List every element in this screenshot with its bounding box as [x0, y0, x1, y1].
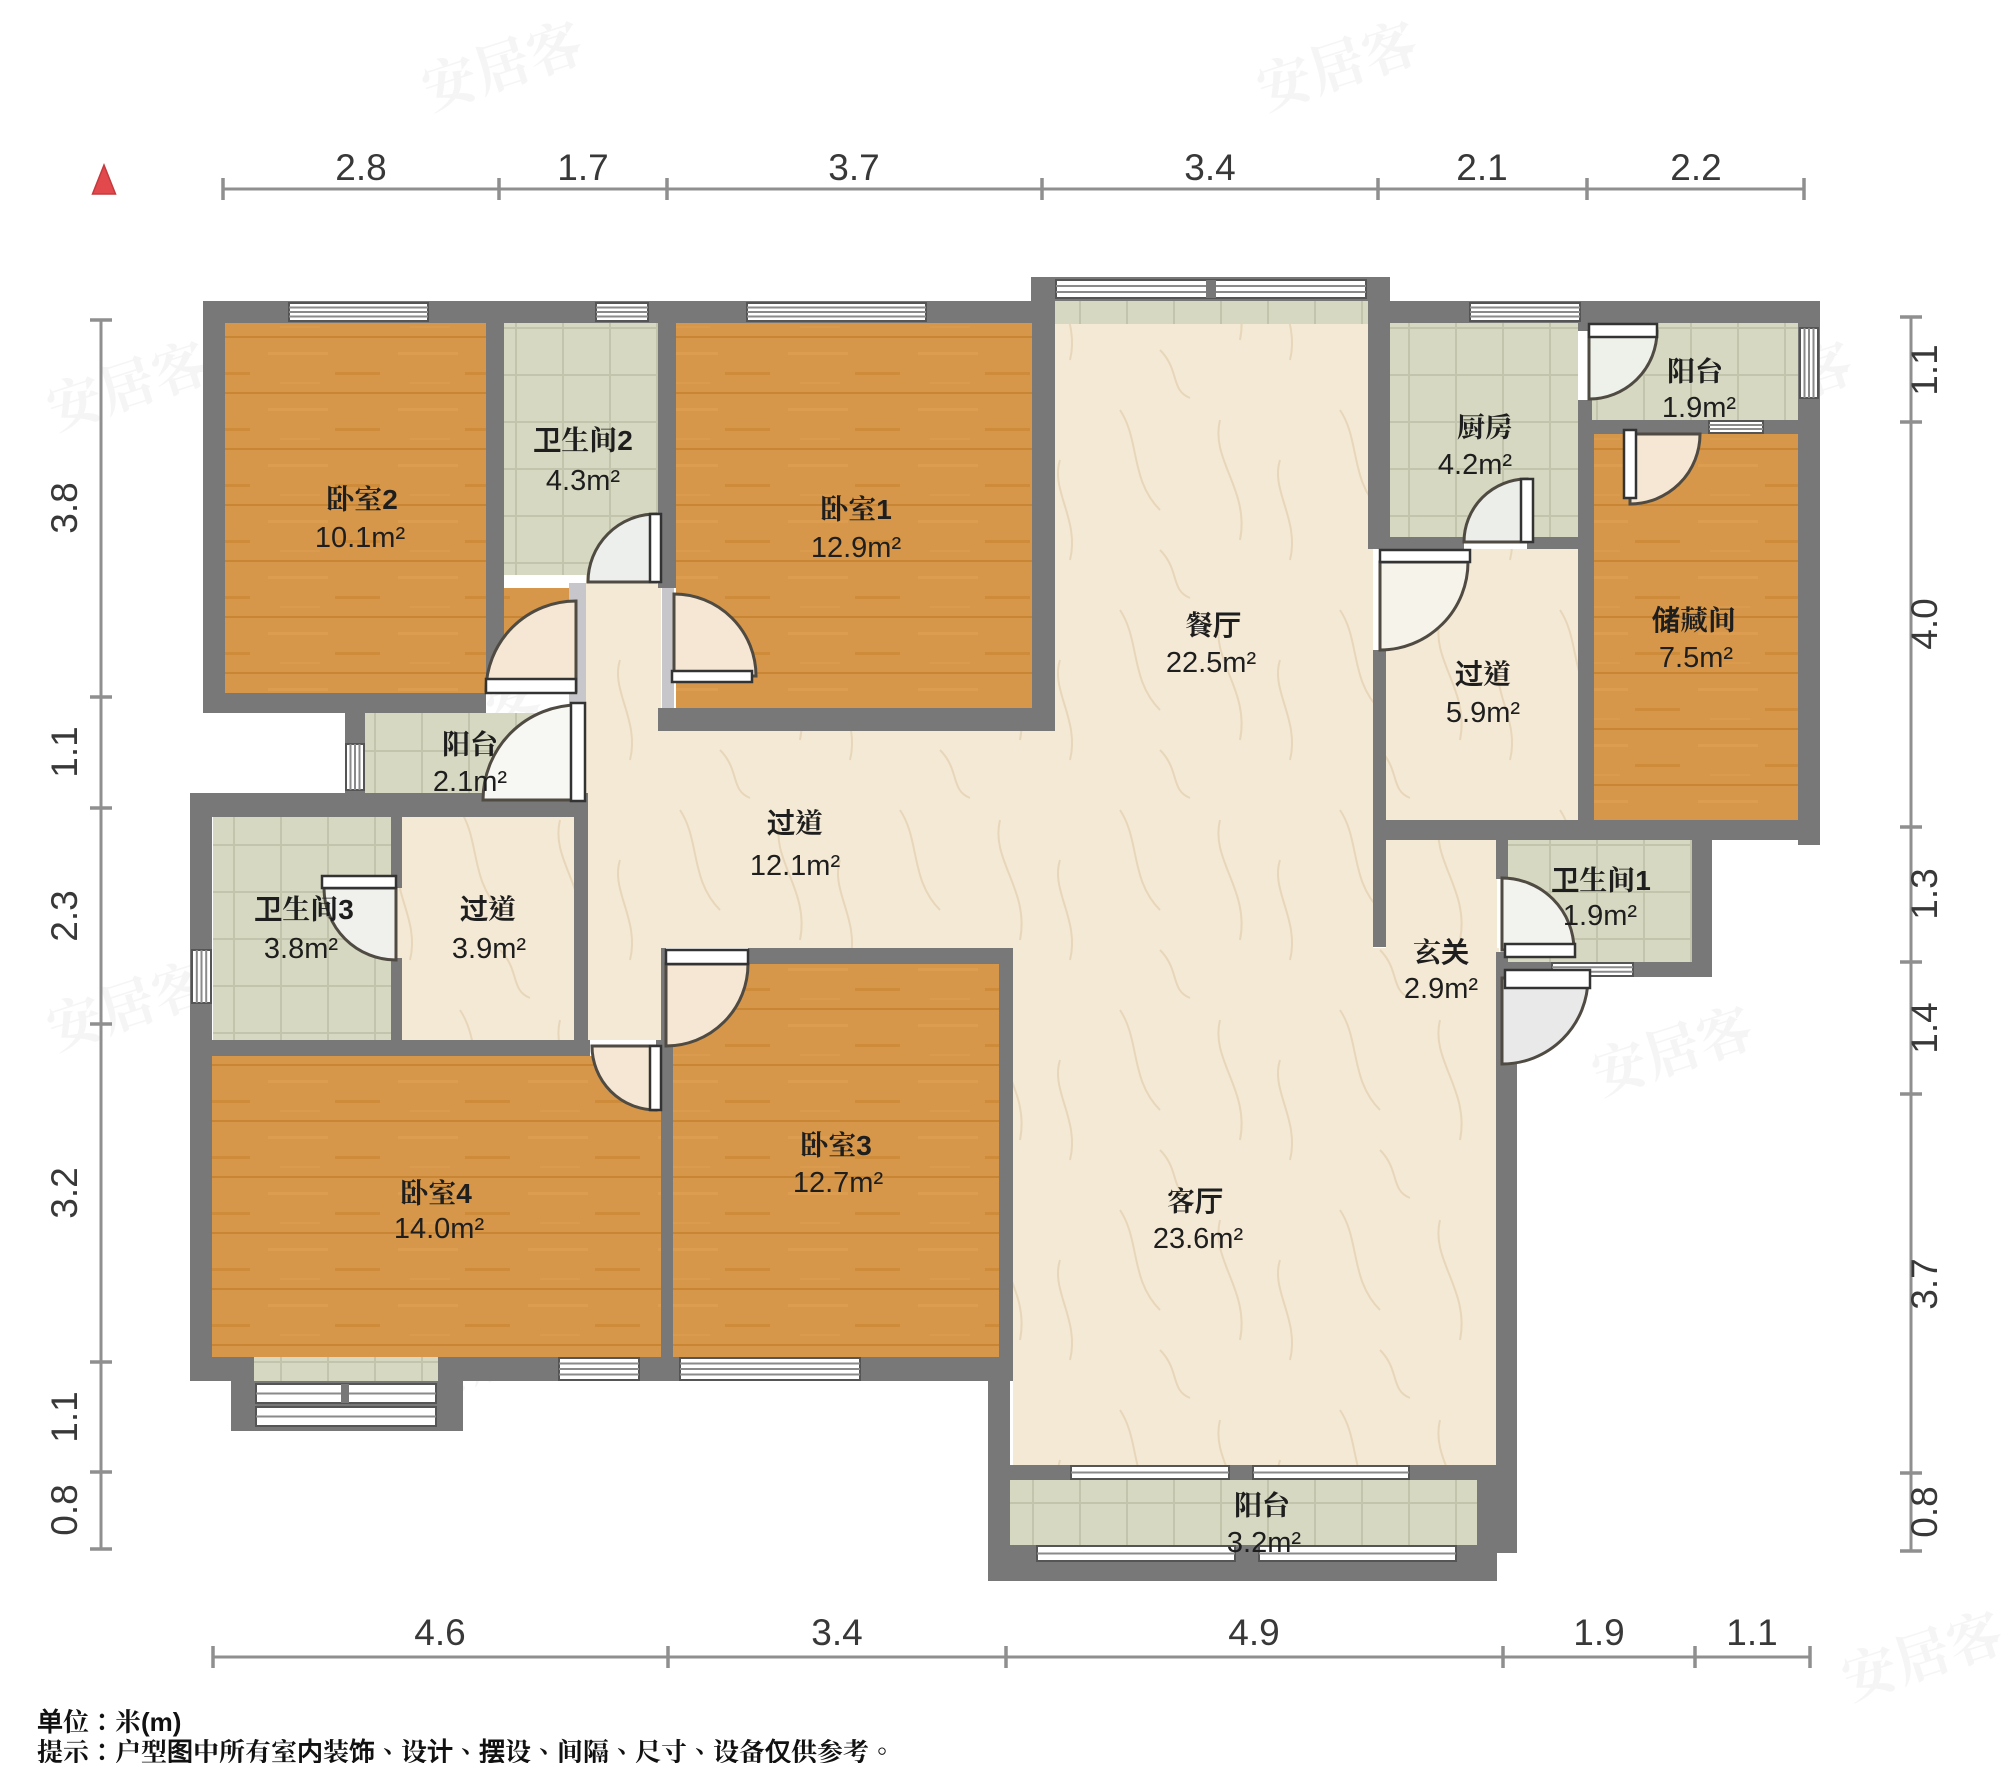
svg-text:3.4: 3.4 [1184, 147, 1235, 188]
svg-text:22.5m²: 22.5m² [1166, 647, 1257, 679]
svg-text:卧室2: 卧室2 [326, 478, 398, 518]
svg-text:阳台: 阳台 [442, 723, 498, 763]
svg-text:卧室1: 卧室1 [820, 488, 892, 528]
svg-text:1.1: 1.1 [44, 1391, 85, 1442]
svg-text:阳台: 阳台 [1234, 1484, 1290, 1524]
svg-text:1.7: 1.7 [557, 147, 608, 188]
svg-text:4.6: 4.6 [414, 1612, 465, 1653]
svg-text:2.8: 2.8 [335, 147, 386, 188]
svg-text:卧室3: 卧室3 [800, 1124, 872, 1164]
svg-text:3.8: 3.8 [44, 482, 85, 533]
svg-text:4.9: 4.9 [1228, 1612, 1279, 1653]
svg-text:2.3: 2.3 [44, 890, 85, 941]
svg-text:12.7m²: 12.7m² [793, 1167, 884, 1199]
svg-text:12.9m²: 12.9m² [811, 532, 902, 564]
svg-text:玄关: 玄关 [1413, 931, 1469, 971]
svg-text:23.6m²: 23.6m² [1153, 1223, 1244, 1255]
svg-text:2.1: 2.1 [1456, 147, 1507, 188]
svg-text:3.4: 3.4 [811, 1612, 862, 1653]
svg-text:客厅: 客厅 [1167, 1180, 1223, 1220]
svg-text:阳台: 阳台 [1667, 350, 1723, 390]
svg-text:5.9m²: 5.9m² [1446, 697, 1520, 729]
svg-text:0.8: 0.8 [44, 1484, 85, 1535]
svg-text:3.7: 3.7 [828, 147, 879, 188]
svg-text:12.1m²: 12.1m² [750, 850, 841, 882]
svg-text:1.4: 1.4 [1904, 1002, 1945, 1053]
svg-text:3.2: 3.2 [44, 1167, 85, 1218]
svg-text:2.2: 2.2 [1670, 147, 1721, 188]
svg-text:3.9m²: 3.9m² [452, 933, 526, 965]
svg-text:过道: 过道 [1455, 653, 1511, 693]
svg-text:10.1m²: 10.1m² [315, 522, 406, 554]
svg-text:1.9m²: 1.9m² [1563, 900, 1637, 932]
svg-text:3.8m²: 3.8m² [264, 933, 338, 965]
svg-text:14.0m²: 14.0m² [394, 1213, 485, 1245]
svg-text:卫生间2: 卫生间2 [533, 419, 633, 459]
svg-text:3.7: 3.7 [1904, 1258, 1945, 1309]
svg-text:卧室4: 卧室4 [400, 1172, 472, 1212]
svg-text:2.9m²: 2.9m² [1404, 973, 1478, 1005]
svg-text:1.9m²: 1.9m² [1662, 392, 1736, 424]
svg-text:4.0: 4.0 [1904, 598, 1945, 649]
svg-text:1.3: 1.3 [1904, 868, 1945, 919]
svg-text:1.1: 1.1 [1726, 1612, 1777, 1653]
svg-text:1.9: 1.9 [1573, 1612, 1624, 1653]
svg-text:7.5m²: 7.5m² [1659, 642, 1733, 674]
svg-text:3.2m²: 3.2m² [1227, 1527, 1301, 1559]
svg-text:过道: 过道 [460, 888, 516, 928]
svg-text:1.1: 1.1 [44, 726, 85, 777]
svg-text:1.1: 1.1 [1904, 344, 1945, 395]
svg-text:4.2m²: 4.2m² [1438, 449, 1512, 481]
svg-text:卫生间1: 卫生间1 [1551, 859, 1651, 899]
svg-text:4.3m²: 4.3m² [546, 465, 620, 497]
svg-text:储藏间: 储藏间 [1652, 599, 1736, 639]
svg-text:0.8: 0.8 [1904, 1486, 1945, 1537]
svg-text:卫生间3: 卫生间3 [254, 888, 354, 928]
svg-text:过道: 过道 [767, 802, 823, 842]
svg-text:2.1m²: 2.1m² [433, 766, 507, 798]
svg-text:厨房: 厨房 [1457, 406, 1513, 446]
svg-text:提示：户型图中所有室内装饰、设计、摆设、间隔、尺寸、设备仅供: 提示：户型图中所有室内装饰、设计、摆设、间隔、尺寸、设备仅供参考。 [37, 1732, 895, 1763]
svg-text:餐厅: 餐厅 [1185, 604, 1241, 644]
